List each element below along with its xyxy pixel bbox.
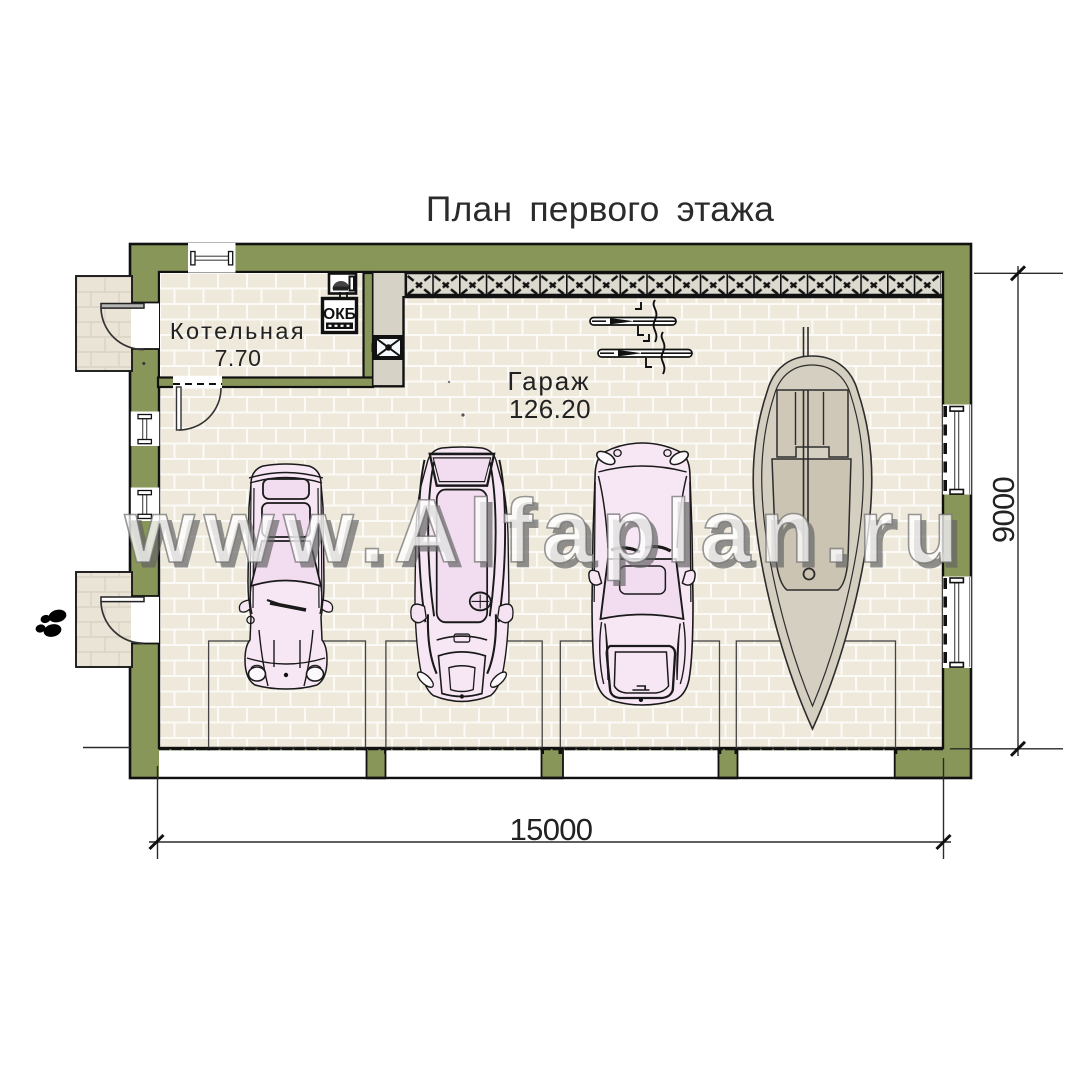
svg-text:126.20: 126.20: [509, 394, 591, 424]
svg-text:9000: 9000: [986, 476, 1021, 543]
svg-text:15000: 15000: [510, 812, 593, 847]
svg-text:ОКБ: ОКБ: [323, 306, 356, 323]
svg-text:www.Alfaplan.ru: www.Alfaplan.ru: [124, 482, 968, 582]
svg-text:Гараж: Гараж: [508, 366, 591, 396]
svg-text:7.70: 7.70: [215, 345, 262, 371]
svg-text:Котельная: Котельная: [170, 318, 306, 344]
svg-text:План первого этажа: План первого этажа: [426, 189, 774, 229]
